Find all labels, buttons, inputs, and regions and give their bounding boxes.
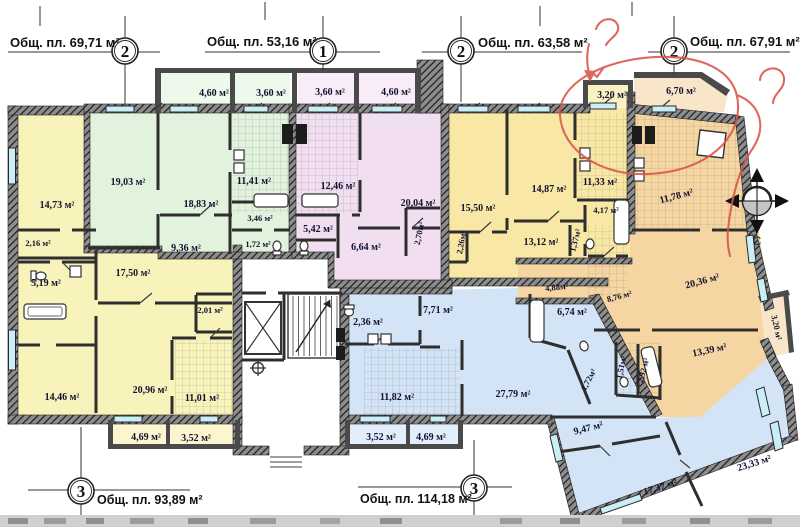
axis-number: 3 [77, 482, 86, 501]
scale-bar-strip [0, 515, 800, 527]
room-area-label: 3,52 м² [366, 432, 396, 443]
axis-number: 2 [121, 42, 130, 61]
total-area-label: Общ. пл. 69,71 м² [10, 35, 120, 50]
room-area-label: 14,87 м² [532, 184, 567, 195]
room-area-label: 13,12 м² [524, 237, 559, 248]
bathtub [254, 194, 288, 207]
room-area-label: 20,96 м² [133, 385, 168, 396]
room-area-label: 3,60 м² [256, 88, 286, 99]
toilet [273, 241, 281, 251]
room-area-label: 11,82 м² [380, 392, 414, 403]
total-area-label: Общ. пл. 53,16 м² [207, 34, 317, 49]
room-area-label: 17,50 м² [116, 268, 151, 279]
room-area-label: 3,46 м² [247, 213, 273, 223]
room-area-label: 27,79 м² [496, 389, 531, 400]
room-area-label: 11,33 м² [583, 177, 617, 188]
room-area-label: 2,16 м² [25, 238, 51, 248]
axis-circles-bottom: 3 3 Общ. пл. 93,89 м² Общ. пл. 114,18 м² [68, 475, 487, 507]
total-area-label: Общ. пл. 93,89 м² [97, 493, 203, 507]
room-area-label: 9,36 м² [171, 243, 201, 254]
axis-number: 1 [319, 42, 328, 61]
room-area-label: 15,50 м² [461, 203, 496, 214]
question-mark-annotation [760, 68, 784, 103]
room-area-label: 14,73 м² [40, 200, 75, 211]
room-area-label: 2,36 м² [353, 317, 383, 328]
room-area-label: 4,60 м² [199, 88, 229, 99]
floor-plan-page: 4,60 м² 3,60 м² 19,03 м² 18,83 м² 9,36 м… [0, 0, 800, 527]
kitchen-sink [234, 150, 244, 160]
room-area-label: 6,64 м² [351, 242, 381, 253]
toilet [586, 239, 594, 249]
axis-number: 2 [457, 42, 466, 61]
room-area-label: 3,52 м² [181, 433, 211, 444]
room-area-label: 11,01 м² [185, 393, 219, 404]
floor-plan-drawing: 4,60 м² 3,60 м² 19,03 м² 18,83 м² 9,36 м… [0, 0, 800, 527]
room-area-label: 3,20 м² [597, 90, 627, 101]
room-area-label: 4,69 м² [416, 432, 446, 443]
room-area-label: 3,60 м² [315, 87, 345, 98]
bathtub [530, 300, 544, 342]
toilet [300, 241, 308, 251]
total-area-label: Общ. пл. 63,58 м² [478, 35, 588, 50]
axis-circles-top: 2 1 2 2 Общ. пл. 69,71 м² Общ. пл. 53,16… [10, 34, 800, 64]
compass-north-letter: С [753, 234, 762, 248]
question-mark-annotation [596, 19, 618, 45]
compass-arrow-north [750, 168, 764, 182]
room-area-label: 14,46 м² [45, 392, 80, 403]
kitchen-sink [368, 334, 378, 344]
room-area-label: 11,41 м² [237, 176, 271, 187]
room-area-label: 12,46 м² [321, 181, 356, 192]
entrance-steps [270, 457, 302, 467]
room-area-label: 5,42 м² [303, 224, 333, 235]
room-area-label: 6,74 м² [557, 307, 587, 318]
room-area-label: 7,71 м² [423, 305, 453, 316]
room-area-label: 6,70 м² [666, 86, 696, 97]
stair-flight [288, 294, 340, 358]
sink [70, 266, 81, 277]
bathtub [302, 194, 338, 207]
room-area-label: 4,17 м² [593, 205, 619, 215]
room-area-label: 20,04 м² [401, 198, 436, 209]
room-area-label: 2,01 м² [197, 305, 223, 315]
room-area-label: 5,19 м² [31, 278, 61, 289]
stairwell [242, 293, 342, 467]
room-area-label: 4,69 м² [131, 432, 161, 443]
total-area-label: Общ. пл. 67,91 м² [690, 34, 800, 49]
kitchen-sink [634, 158, 644, 168]
room-area-label: 19,03 м² [111, 177, 146, 188]
room-area-label: 4,60 м² [381, 87, 411, 98]
room-area-label: 1,72 м² [245, 239, 271, 249]
compass-arrow-east [775, 194, 789, 208]
total-area-label: Общ. пл. 114,18 м² [360, 492, 472, 506]
room-area-label: 18,83 м² [184, 199, 219, 210]
